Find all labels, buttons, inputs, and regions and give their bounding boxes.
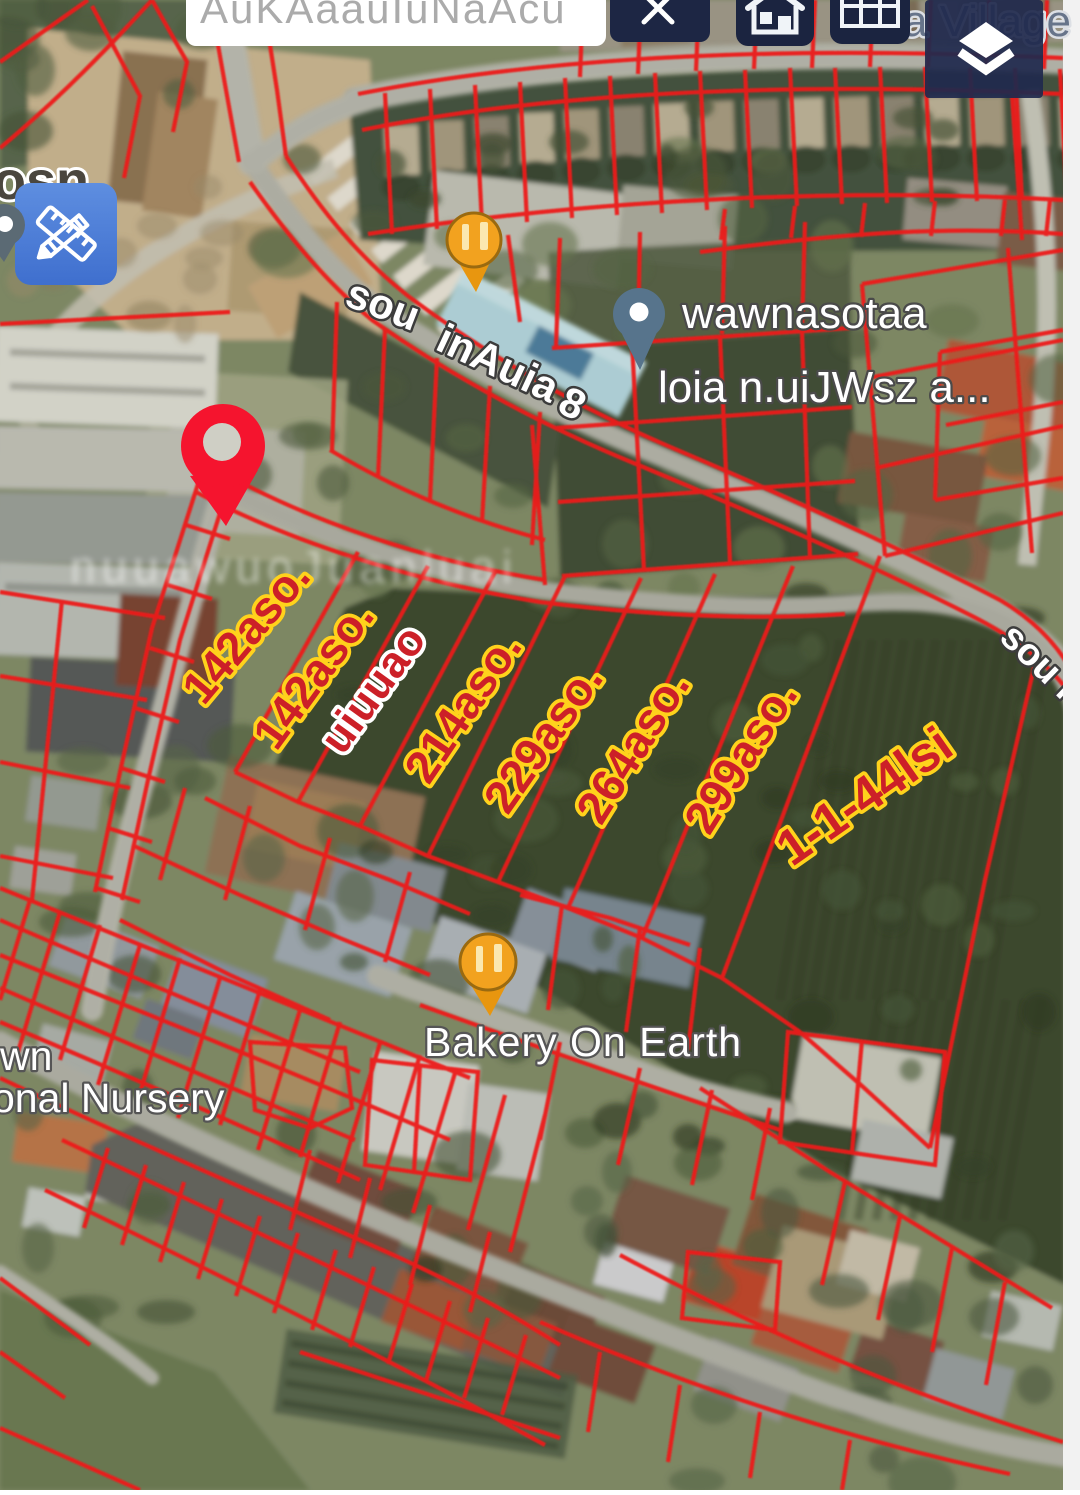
svg-text:Bakery On Earth: Bakery On Earth <box>424 1019 742 1065</box>
svg-text:onal Nursery: onal Nursery <box>0 1075 225 1121</box>
svg-text:loia n.uiJWsz a...: loia n.uiJWsz a... <box>658 363 991 412</box>
svg-text:wawnasotaa: wawnasotaa <box>681 289 927 338</box>
svg-text:AuKAaauIuNaAcu: AuKAaauIuNaAcu <box>200 0 567 32</box>
svg-text:wn: wn <box>0 1033 52 1079</box>
